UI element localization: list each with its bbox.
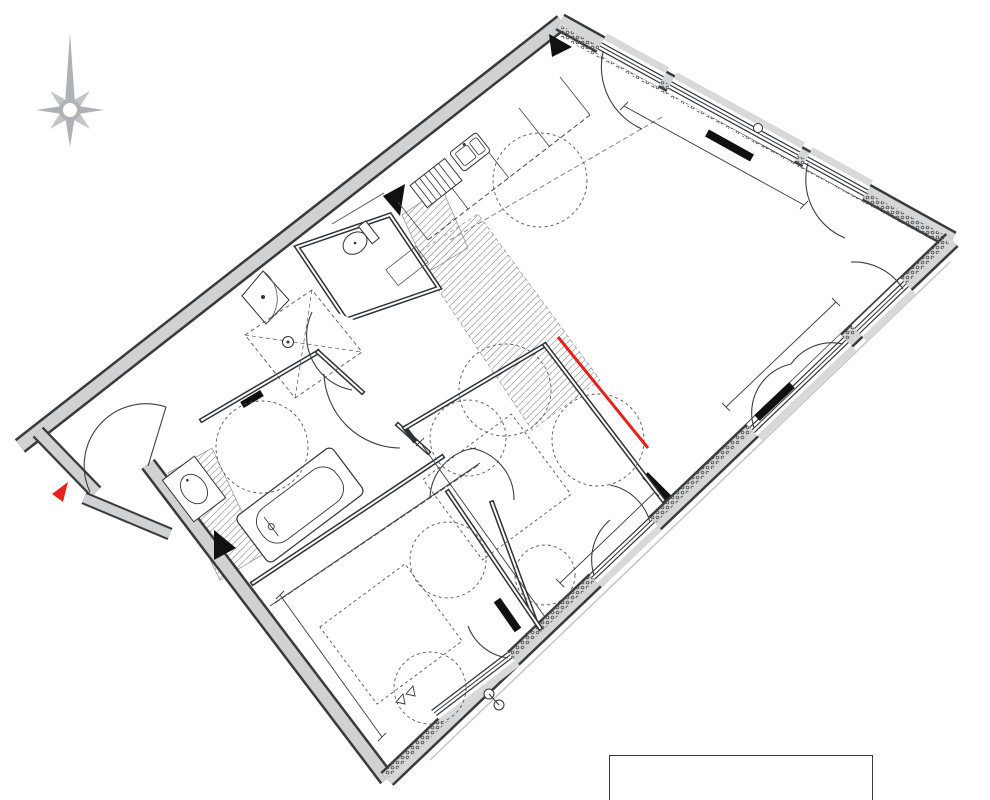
compass-ring — [61, 101, 79, 119]
vent-arrow — [406, 686, 415, 696]
dim-tick — [620, 102, 628, 110]
bed-chambre1 — [320, 564, 462, 704]
tile-boundary-line — [450, 117, 662, 240]
ep-circle-top — [754, 124, 763, 133]
nota-box — [609, 755, 873, 800]
dim-tick — [378, 733, 386, 741]
window-pf-chambre2 — [590, 518, 660, 586]
vent-arrow — [396, 694, 405, 704]
duct-wc — [383, 184, 405, 216]
window-pf-ne-2 — [804, 150, 871, 196]
dim-line-679 — [624, 106, 804, 205]
counter-separator — [560, 77, 590, 115]
partition-chambre2-ne — [545, 345, 663, 500]
door-arc-chambre1 — [470, 448, 514, 500]
radiator-chambre1 — [497, 600, 518, 630]
door-arc-chambre2 — [430, 448, 476, 497]
compass-north-spike — [65, 33, 75, 104]
partition-sdb — [202, 352, 428, 452]
window-pf-se-1 — [855, 282, 914, 340]
compass-east-spike — [78, 106, 104, 114]
door-leaf-entry — [148, 407, 166, 466]
window-f-chambre1 — [432, 653, 518, 722]
dim-tick — [800, 201, 808, 209]
furniture-circle — [430, 400, 506, 476]
hob — [410, 158, 462, 207]
kitchen-sink — [449, 132, 491, 172]
toilet — [338, 221, 379, 260]
dim-line-390 — [420, 442, 545, 617]
emprise-carrelage-circle — [493, 133, 587, 227]
floor-plan-page — [0, 0, 990, 800]
counter-separator — [519, 108, 549, 146]
partition-chambre2-w — [405, 428, 540, 628]
door-arc-sdb — [324, 374, 400, 448]
compass-west-spike — [36, 106, 62, 114]
entry-triangle — [52, 482, 68, 502]
floor-plan-drawing — [0, 0, 990, 800]
gtl-closet — [242, 271, 289, 324]
unit-marker — [52, 482, 68, 502]
compass-rose — [36, 33, 104, 147]
wall-palier — [84, 498, 170, 534]
furniture-circle — [552, 394, 644, 486]
